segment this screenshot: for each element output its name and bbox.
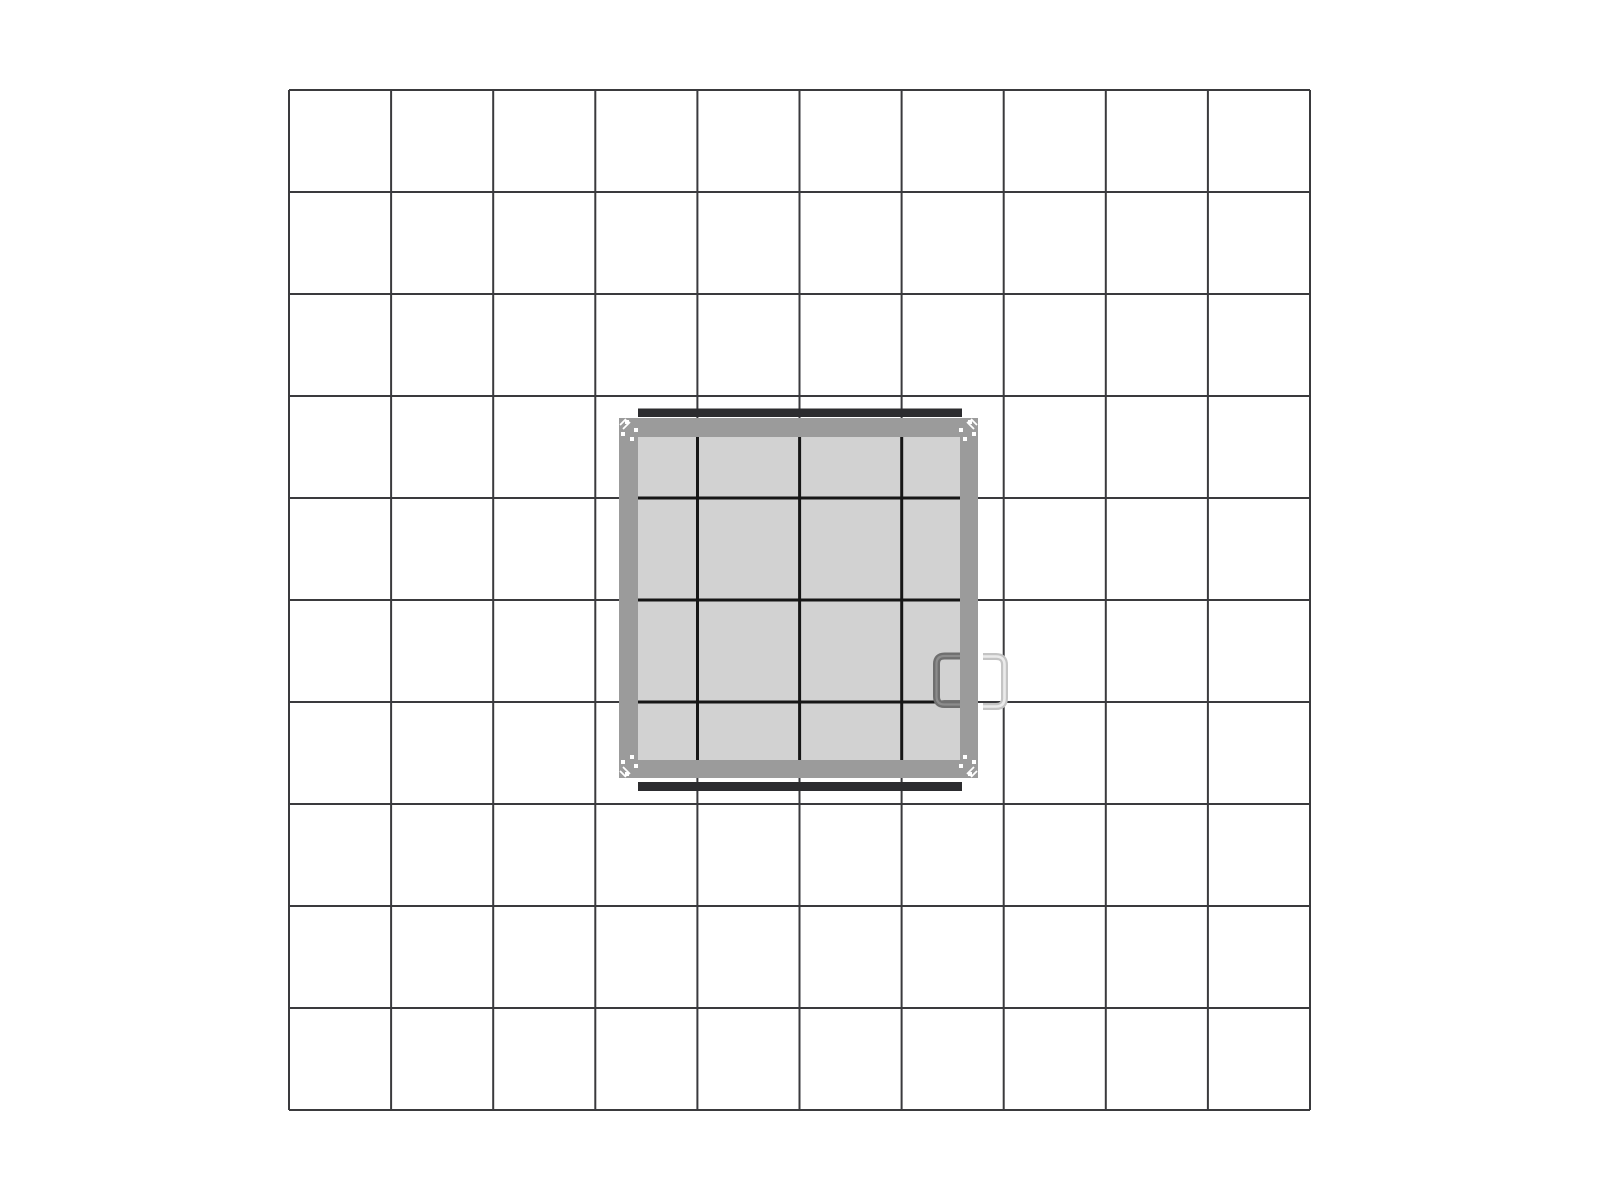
top-flashing-bar (638, 409, 962, 418)
bottom-flashing-bar (638, 782, 962, 791)
drawing-canvas (0, 0, 1600, 1200)
fastener-bolt (621, 432, 625, 436)
fastener-bolt (634, 764, 638, 768)
grid-drawing (0, 0, 1600, 1200)
fastener-bolt (963, 755, 967, 759)
fastener-bolt (963, 437, 967, 441)
fastener-bolt (634, 428, 638, 432)
fastener-bolt (972, 760, 976, 764)
fastener-bolt (959, 764, 963, 768)
fastener-bolt (959, 428, 963, 432)
fastener-bolt (972, 432, 976, 436)
fastener-bolt (630, 437, 634, 441)
fastener-bolt (621, 760, 625, 764)
fastener-bolt (630, 755, 634, 759)
